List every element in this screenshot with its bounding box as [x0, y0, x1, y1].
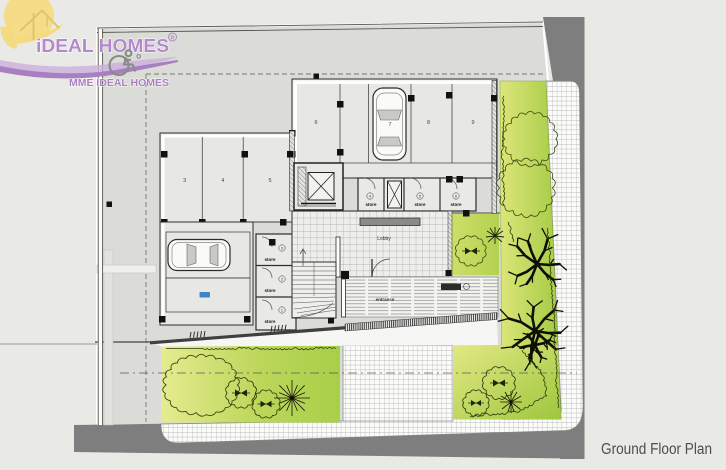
svg-text:entrance: entrance [376, 297, 395, 302]
svg-text:store: store [264, 257, 276, 262]
svg-text:9: 9 [471, 120, 474, 126]
svg-text:8: 8 [427, 120, 430, 126]
svg-text:1: 1 [281, 308, 283, 312]
svg-text:store: store [414, 202, 426, 207]
svg-text:6: 6 [314, 120, 317, 126]
svg-text:MME IDEAL HOMES: MME IDEAL HOMES [69, 78, 169, 89]
svg-text:store: store [450, 202, 462, 207]
svg-text:3: 3 [281, 246, 283, 250]
svg-text:Lobby: Lobby [377, 236, 391, 242]
svg-text:3: 3 [183, 178, 186, 184]
svg-text:store: store [264, 319, 276, 324]
svg-text:7: 7 [388, 122, 391, 128]
svg-text:5: 5 [268, 178, 271, 184]
svg-text:4: 4 [221, 178, 224, 184]
svg-text:6: 6 [455, 194, 457, 198]
svg-text:store: store [365, 202, 377, 207]
svg-text:store: store [264, 288, 276, 293]
svg-text:2: 2 [281, 277, 283, 281]
svg-text:4: 4 [369, 194, 371, 198]
svg-text:5: 5 [419, 194, 421, 198]
svg-text:Ground Floor Plan: Ground Floor Plan [601, 441, 712, 458]
svg-text:iDEAL HOMES: iDEAL HOMES [36, 36, 169, 56]
svg-text:R: R [171, 36, 175, 42]
